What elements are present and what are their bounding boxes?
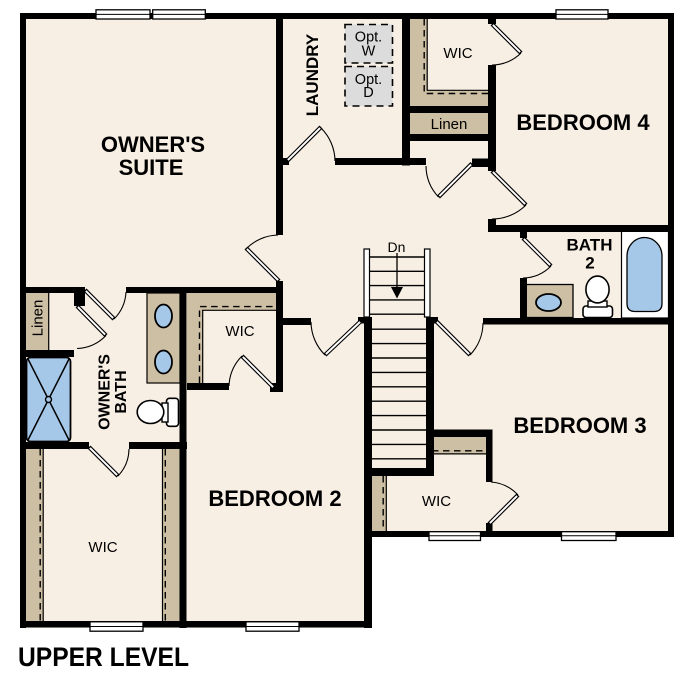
svg-text:UPPER LEVEL: UPPER LEVEL [18, 642, 189, 672]
svg-text:SUITE: SUITE [119, 155, 184, 180]
svg-text:BEDROOM 4: BEDROOM 4 [516, 110, 650, 135]
svg-text:BEDROOM 2: BEDROOM 2 [208, 486, 341, 511]
svg-text:BATH: BATH [113, 370, 130, 413]
svg-text:WIC: WIC [88, 539, 117, 556]
svg-text:OWNER'S: OWNER'S [97, 354, 114, 430]
svg-text:WIC: WIC [443, 45, 472, 62]
svg-text:WIC: WIC [422, 493, 451, 510]
svg-text:WIC: WIC [225, 323, 254, 340]
svg-text:LAUNDRY: LAUNDRY [303, 33, 322, 116]
svg-text:W: W [362, 44, 376, 60]
svg-text:BATH: BATH [567, 236, 613, 255]
svg-text:Linen: Linen [431, 116, 468, 133]
svg-text:Linen: Linen [30, 300, 47, 337]
svg-text:OWNER'S: OWNER'S [101, 132, 205, 157]
svg-text:BEDROOM 3: BEDROOM 3 [513, 413, 646, 438]
svg-text:D: D [363, 85, 373, 101]
svg-text:Dn: Dn [388, 239, 406, 255]
svg-text:2: 2 [585, 254, 594, 273]
